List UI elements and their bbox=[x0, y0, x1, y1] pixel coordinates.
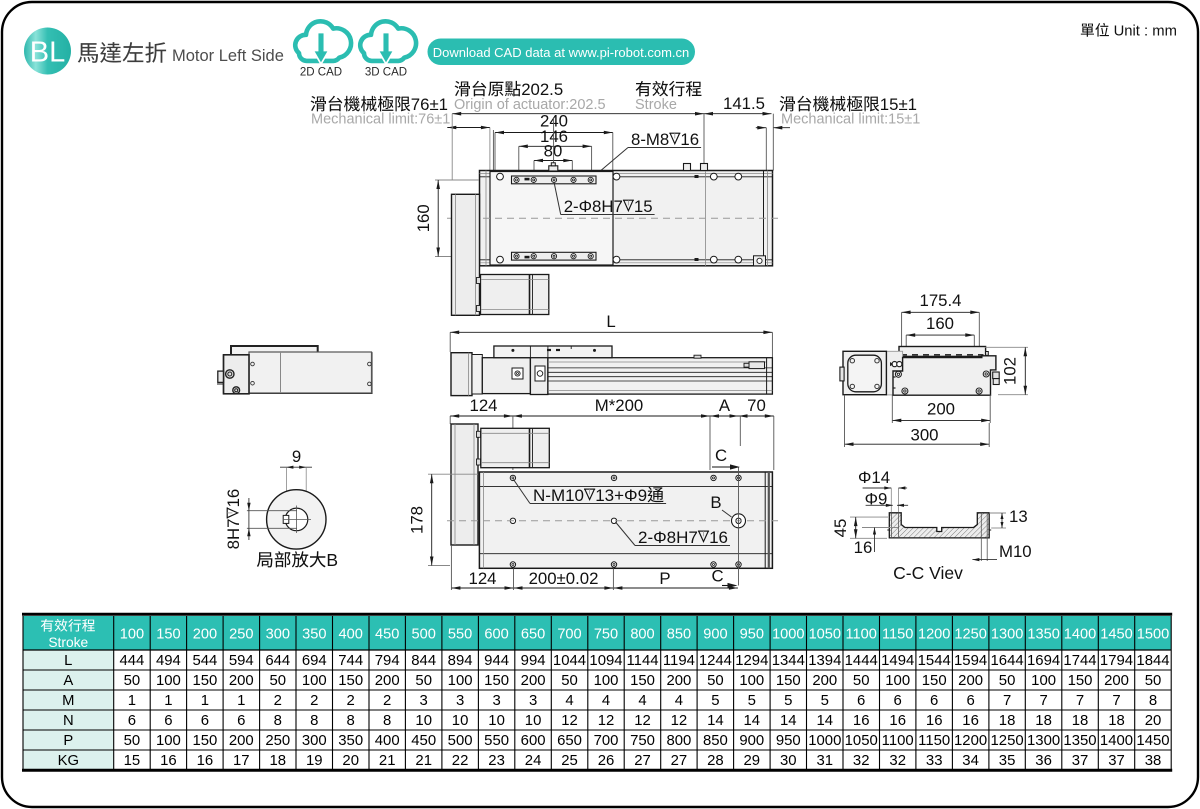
svg-text:150: 150 bbox=[1068, 673, 1093, 689]
svg-text:16: 16 bbox=[224, 489, 243, 508]
svg-text:200: 200 bbox=[193, 627, 217, 643]
svg-text:6: 6 bbox=[894, 693, 902, 709]
svg-text:124: 124 bbox=[469, 569, 497, 588]
svg-text:6: 6 bbox=[237, 713, 245, 729]
svg-text:1444: 1444 bbox=[845, 653, 878, 669]
svg-text:950: 950 bbox=[740, 627, 764, 643]
svg-text:200: 200 bbox=[1104, 673, 1129, 689]
svg-text:650: 650 bbox=[557, 733, 582, 749]
svg-text:7: 7 bbox=[1039, 693, 1047, 709]
svg-text:150: 150 bbox=[776, 673, 801, 689]
svg-text:Origin of actuator:202.5: Origin of actuator:202.5 bbox=[454, 97, 606, 113]
svg-text:50: 50 bbox=[561, 673, 578, 689]
svg-text:50: 50 bbox=[1145, 673, 1162, 689]
svg-text:16: 16 bbox=[926, 713, 943, 729]
svg-text:Unit : mm: Unit : mm bbox=[1114, 24, 1177, 40]
svg-text:BL: BL bbox=[30, 37, 65, 69]
svg-text:1094: 1094 bbox=[589, 653, 622, 669]
svg-text:Mechanical limit:15±1: Mechanical limit:15±1 bbox=[781, 112, 920, 128]
svg-text:200: 200 bbox=[927, 400, 955, 419]
svg-text:18: 18 bbox=[1035, 713, 1052, 729]
svg-text:1100: 1100 bbox=[846, 627, 877, 643]
svg-text:Mechanical limit:76±1: Mechanical limit:76±1 bbox=[311, 112, 450, 128]
svg-text:6: 6 bbox=[128, 713, 136, 729]
svg-text:1000: 1000 bbox=[772, 627, 804, 643]
svg-text:2: 2 bbox=[347, 693, 355, 709]
svg-text:26: 26 bbox=[598, 753, 615, 769]
svg-text:5: 5 bbox=[821, 693, 829, 709]
svg-text:1200: 1200 bbox=[918, 627, 950, 643]
svg-text:19: 19 bbox=[306, 753, 323, 769]
svg-text:32: 32 bbox=[853, 753, 870, 769]
svg-text:A: A bbox=[719, 396, 731, 415]
svg-text:18: 18 bbox=[1072, 713, 1089, 729]
svg-text:18: 18 bbox=[270, 753, 287, 769]
svg-text:1450: 1450 bbox=[1136, 733, 1169, 749]
svg-text:800: 800 bbox=[630, 627, 654, 643]
svg-text:894: 894 bbox=[448, 653, 473, 669]
svg-text:5: 5 bbox=[748, 693, 756, 709]
svg-text:37: 37 bbox=[1108, 753, 1125, 769]
svg-text:27: 27 bbox=[634, 753, 651, 769]
svg-text:3: 3 bbox=[420, 693, 428, 709]
svg-text:1494: 1494 bbox=[881, 653, 914, 669]
svg-text:36: 36 bbox=[1035, 753, 1052, 769]
svg-text:150: 150 bbox=[338, 673, 363, 689]
svg-text:L: L bbox=[606, 312, 615, 331]
svg-text:37: 37 bbox=[1072, 753, 1089, 769]
svg-text:N: N bbox=[63, 713, 74, 729]
svg-text:70: 70 bbox=[747, 396, 766, 415]
svg-text:1350: 1350 bbox=[1027, 627, 1059, 643]
svg-text:10: 10 bbox=[415, 713, 432, 729]
svg-text:102: 102 bbox=[1001, 357, 1020, 385]
svg-text:3: 3 bbox=[456, 693, 464, 709]
svg-text:50: 50 bbox=[853, 673, 870, 689]
svg-text:250: 250 bbox=[229, 627, 253, 643]
svg-text:200: 200 bbox=[958, 673, 983, 689]
svg-text:141.5: 141.5 bbox=[723, 94, 765, 113]
svg-text:1: 1 bbox=[164, 693, 172, 709]
svg-text:1200: 1200 bbox=[954, 733, 987, 749]
svg-text:160: 160 bbox=[926, 314, 954, 333]
svg-text:KG: KG bbox=[58, 753, 79, 769]
svg-text:544: 544 bbox=[192, 653, 217, 669]
svg-text:16: 16 bbox=[889, 713, 906, 729]
svg-text:994: 994 bbox=[521, 653, 546, 669]
svg-text:1050: 1050 bbox=[809, 627, 841, 643]
svg-text:444: 444 bbox=[119, 653, 144, 669]
svg-text:100: 100 bbox=[302, 673, 327, 689]
svg-text:16: 16 bbox=[160, 753, 177, 769]
svg-text:B: B bbox=[710, 493, 721, 512]
svg-text:1400: 1400 bbox=[1064, 627, 1096, 643]
svg-text:100: 100 bbox=[156, 733, 181, 749]
svg-text:200: 200 bbox=[812, 673, 837, 689]
svg-text:1300: 1300 bbox=[1027, 733, 1060, 749]
svg-text:31: 31 bbox=[817, 753, 834, 769]
svg-text:800: 800 bbox=[666, 733, 691, 749]
svg-text:38: 38 bbox=[1145, 753, 1162, 769]
svg-text:10: 10 bbox=[452, 713, 469, 729]
svg-text:124: 124 bbox=[470, 396, 498, 415]
svg-text:10: 10 bbox=[525, 713, 542, 729]
svg-text:Stroke: Stroke bbox=[48, 635, 88, 650]
svg-text:5: 5 bbox=[784, 693, 792, 709]
svg-text:3D CAD: 3D CAD bbox=[365, 67, 407, 79]
svg-text:594: 594 bbox=[229, 653, 254, 669]
svg-text:20: 20 bbox=[342, 753, 359, 769]
svg-text:2: 2 bbox=[310, 693, 318, 709]
svg-text:N-M10: N-M10 bbox=[533, 486, 584, 505]
svg-text:12: 12 bbox=[671, 713, 688, 729]
svg-text:100: 100 bbox=[1031, 673, 1056, 689]
svg-text:494: 494 bbox=[156, 653, 181, 669]
svg-text:900: 900 bbox=[703, 627, 727, 643]
svg-text:1250: 1250 bbox=[954, 627, 986, 643]
svg-text:8: 8 bbox=[274, 713, 282, 729]
svg-text:7: 7 bbox=[1112, 693, 1120, 709]
svg-text:15: 15 bbox=[124, 753, 141, 769]
svg-text:1294: 1294 bbox=[735, 653, 768, 669]
svg-text:1: 1 bbox=[128, 693, 136, 709]
svg-text:300: 300 bbox=[266, 627, 290, 643]
svg-text:25: 25 bbox=[561, 753, 578, 769]
svg-text:350: 350 bbox=[302, 627, 326, 643]
svg-text:12: 12 bbox=[634, 713, 651, 729]
svg-text:50: 50 bbox=[415, 673, 432, 689]
svg-text:300: 300 bbox=[302, 733, 327, 749]
svg-text:16: 16 bbox=[709, 528, 728, 547]
svg-text:850: 850 bbox=[703, 733, 728, 749]
svg-text:16: 16 bbox=[962, 713, 979, 729]
svg-text:14: 14 bbox=[780, 713, 797, 729]
svg-text:2-Φ8H7: 2-Φ8H7 bbox=[638, 528, 698, 547]
svg-text:2: 2 bbox=[383, 693, 391, 709]
svg-text:6: 6 bbox=[164, 713, 172, 729]
svg-text:200: 200 bbox=[521, 673, 546, 689]
svg-text:150: 150 bbox=[192, 733, 217, 749]
svg-text:1150: 1150 bbox=[882, 627, 913, 643]
svg-text:80: 80 bbox=[544, 142, 563, 161]
svg-text:6: 6 bbox=[930, 693, 938, 709]
svg-text:1450: 1450 bbox=[1100, 627, 1132, 643]
svg-text:6: 6 bbox=[966, 693, 974, 709]
svg-text:500: 500 bbox=[448, 733, 473, 749]
svg-text:1500: 1500 bbox=[1137, 627, 1169, 643]
svg-text:M*200: M*200 bbox=[595, 396, 644, 415]
svg-text:650: 650 bbox=[521, 627, 545, 643]
svg-text:150: 150 bbox=[484, 673, 509, 689]
svg-text:8-M8: 8-M8 bbox=[631, 130, 669, 149]
svg-text:18: 18 bbox=[999, 713, 1016, 729]
svg-text:28: 28 bbox=[707, 753, 724, 769]
svg-text:4: 4 bbox=[638, 693, 646, 709]
svg-text:2D CAD: 2D CAD bbox=[300, 67, 342, 79]
svg-text:12: 12 bbox=[561, 713, 578, 729]
svg-text:14: 14 bbox=[707, 713, 724, 729]
svg-text:8: 8 bbox=[347, 713, 355, 729]
svg-text:50: 50 bbox=[124, 733, 141, 749]
svg-text:1844: 1844 bbox=[1136, 653, 1169, 669]
svg-text:450: 450 bbox=[375, 627, 399, 643]
svg-text:1044: 1044 bbox=[553, 653, 586, 669]
svg-text:700: 700 bbox=[557, 627, 581, 643]
svg-text:150: 150 bbox=[630, 673, 655, 689]
svg-text:50: 50 bbox=[270, 673, 287, 689]
svg-text:160: 160 bbox=[414, 204, 433, 232]
svg-text:4: 4 bbox=[675, 693, 683, 709]
svg-text:1400: 1400 bbox=[1100, 733, 1133, 749]
svg-text:C: C bbox=[711, 567, 723, 586]
svg-text:Motor Left Side: Motor Left Side bbox=[172, 47, 284, 65]
svg-text:6: 6 bbox=[201, 713, 209, 729]
svg-text:200: 200 bbox=[666, 673, 691, 689]
svg-text:1050: 1050 bbox=[845, 733, 878, 749]
svg-text:1794: 1794 bbox=[1100, 653, 1133, 669]
svg-text:4: 4 bbox=[565, 693, 573, 709]
svg-text:1250: 1250 bbox=[991, 733, 1024, 749]
svg-text:10: 10 bbox=[488, 713, 505, 729]
svg-text:6: 6 bbox=[857, 693, 865, 709]
svg-text:16: 16 bbox=[853, 713, 870, 729]
svg-text:21: 21 bbox=[415, 753, 432, 769]
svg-text:400: 400 bbox=[375, 733, 400, 749]
svg-text:200: 200 bbox=[375, 673, 400, 689]
svg-text:1344: 1344 bbox=[772, 653, 805, 669]
svg-text:1144: 1144 bbox=[626, 653, 658, 669]
svg-text:1394: 1394 bbox=[808, 653, 841, 669]
svg-text:Φ14: Φ14 bbox=[858, 468, 890, 487]
svg-text:1350: 1350 bbox=[1063, 733, 1096, 749]
svg-text:16: 16 bbox=[680, 130, 699, 149]
svg-text:A: A bbox=[63, 673, 73, 689]
svg-text:850: 850 bbox=[667, 627, 691, 643]
svg-text:750: 750 bbox=[594, 627, 618, 643]
svg-text:8: 8 bbox=[310, 713, 318, 729]
svg-text:500: 500 bbox=[412, 627, 436, 643]
svg-text:644: 644 bbox=[265, 653, 290, 669]
svg-text:50: 50 bbox=[707, 673, 724, 689]
svg-text:750: 750 bbox=[630, 733, 655, 749]
svg-text:100: 100 bbox=[885, 673, 910, 689]
svg-text:844: 844 bbox=[411, 653, 436, 669]
svg-text:20: 20 bbox=[1145, 713, 1162, 729]
svg-text:35: 35 bbox=[999, 753, 1016, 769]
svg-text:22: 22 bbox=[452, 753, 469, 769]
svg-text:Download CAD data at www.pi-ro: Download CAD data at www.pi-robot.com.cn bbox=[433, 45, 690, 60]
svg-text:15: 15 bbox=[634, 197, 653, 216]
svg-text:200: 200 bbox=[229, 733, 254, 749]
svg-text:18: 18 bbox=[1108, 713, 1125, 729]
svg-text:9: 9 bbox=[292, 447, 301, 466]
svg-text:700: 700 bbox=[594, 733, 619, 749]
svg-text:29: 29 bbox=[744, 753, 761, 769]
svg-text:M10: M10 bbox=[999, 542, 1032, 561]
svg-text:100: 100 bbox=[120, 627, 144, 643]
svg-text:100: 100 bbox=[594, 673, 619, 689]
svg-text:794: 794 bbox=[375, 653, 400, 669]
svg-text:1: 1 bbox=[237, 693, 245, 709]
svg-text:34: 34 bbox=[962, 753, 979, 769]
svg-text:200±0.02: 200±0.02 bbox=[529, 569, 599, 588]
svg-text:24: 24 bbox=[525, 753, 542, 769]
svg-text:B: B bbox=[326, 550, 338, 570]
svg-text:33: 33 bbox=[926, 753, 943, 769]
svg-text:900: 900 bbox=[739, 733, 764, 749]
svg-text:14: 14 bbox=[817, 713, 834, 729]
svg-text:12: 12 bbox=[598, 713, 615, 729]
svg-text:C-C Viev: C-C Viev bbox=[893, 563, 963, 583]
svg-text:C: C bbox=[715, 446, 727, 465]
svg-text:178: 178 bbox=[408, 506, 427, 534]
svg-text:50: 50 bbox=[124, 673, 141, 689]
svg-text:1594: 1594 bbox=[954, 653, 987, 669]
svg-text:300: 300 bbox=[911, 426, 939, 445]
svg-text:200: 200 bbox=[229, 673, 254, 689]
svg-text:1694: 1694 bbox=[1027, 653, 1060, 669]
svg-text:32: 32 bbox=[889, 753, 906, 769]
svg-text:944: 944 bbox=[484, 653, 509, 669]
svg-text:8: 8 bbox=[383, 713, 391, 729]
svg-text:950: 950 bbox=[776, 733, 801, 749]
svg-text:1150: 1150 bbox=[918, 733, 950, 749]
svg-text:13+Φ9: 13+Φ9 bbox=[595, 486, 647, 505]
svg-text:744: 744 bbox=[338, 653, 363, 669]
svg-text:600: 600 bbox=[521, 733, 546, 749]
svg-text:P: P bbox=[659, 569, 670, 588]
svg-text:30: 30 bbox=[780, 753, 797, 769]
svg-text:M: M bbox=[62, 693, 74, 709]
svg-text:1100: 1100 bbox=[882, 733, 914, 749]
svg-text:1644: 1644 bbox=[991, 653, 1024, 669]
svg-text:Stroke: Stroke bbox=[635, 97, 677, 113]
svg-text:2-Φ8H7: 2-Φ8H7 bbox=[564, 197, 623, 216]
svg-text:4: 4 bbox=[602, 693, 610, 709]
svg-text:17: 17 bbox=[233, 753, 250, 769]
svg-text:50: 50 bbox=[999, 673, 1016, 689]
svg-text:1194: 1194 bbox=[663, 653, 695, 669]
svg-text:27: 27 bbox=[671, 753, 688, 769]
svg-text:150: 150 bbox=[922, 673, 947, 689]
svg-text:100: 100 bbox=[156, 673, 181, 689]
svg-text:13: 13 bbox=[1009, 507, 1028, 526]
svg-text:150: 150 bbox=[192, 673, 217, 689]
svg-text:100: 100 bbox=[448, 673, 473, 689]
svg-text:1300: 1300 bbox=[991, 627, 1023, 643]
svg-text:550: 550 bbox=[448, 627, 472, 643]
svg-text:150: 150 bbox=[156, 627, 180, 643]
svg-text:100: 100 bbox=[739, 673, 764, 689]
svg-text:250: 250 bbox=[265, 733, 290, 749]
svg-text:7: 7 bbox=[1076, 693, 1084, 709]
svg-text:350: 350 bbox=[338, 733, 363, 749]
svg-text:1244: 1244 bbox=[699, 653, 732, 669]
svg-text:8H7: 8H7 bbox=[224, 519, 243, 550]
svg-text:1: 1 bbox=[201, 693, 209, 709]
svg-text:450: 450 bbox=[411, 733, 436, 749]
svg-text:3: 3 bbox=[529, 693, 537, 709]
svg-text:16: 16 bbox=[854, 538, 873, 557]
svg-text:7: 7 bbox=[1003, 693, 1011, 709]
svg-text:5: 5 bbox=[711, 693, 719, 709]
svg-text:3: 3 bbox=[492, 693, 500, 709]
svg-text:L: L bbox=[64, 653, 72, 669]
svg-text:16: 16 bbox=[197, 753, 214, 769]
svg-text:1544: 1544 bbox=[918, 653, 951, 669]
svg-text:694: 694 bbox=[302, 653, 327, 669]
svg-text:175.4: 175.4 bbox=[920, 291, 962, 310]
svg-text:P: P bbox=[63, 733, 73, 749]
svg-text:1000: 1000 bbox=[808, 733, 841, 749]
svg-text:600: 600 bbox=[484, 627, 508, 643]
svg-text:14: 14 bbox=[744, 713, 761, 729]
svg-text:45: 45 bbox=[831, 519, 850, 538]
svg-text:400: 400 bbox=[339, 627, 363, 643]
svg-text:21: 21 bbox=[379, 753, 396, 769]
svg-text:8: 8 bbox=[1149, 693, 1157, 709]
svg-text:2: 2 bbox=[274, 693, 282, 709]
svg-text:23: 23 bbox=[488, 753, 505, 769]
svg-text:550: 550 bbox=[484, 733, 509, 749]
svg-text:1744: 1744 bbox=[1063, 653, 1096, 669]
